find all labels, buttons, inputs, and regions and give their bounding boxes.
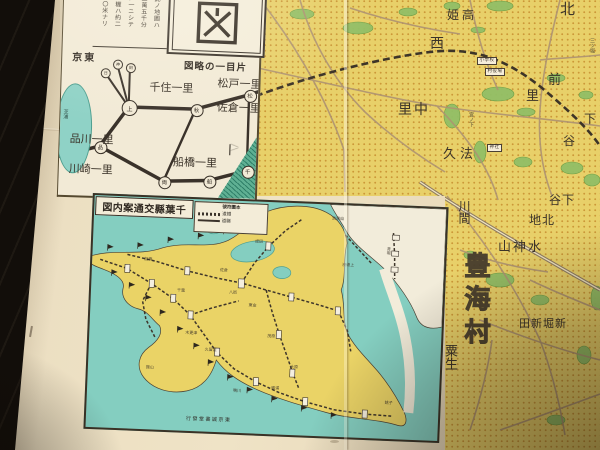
- shadow-bottom-right: [280, 210, 600, 450]
- inset-town: 東金: [248, 303, 256, 307]
- distance-note: 船橋一里: [173, 156, 217, 168]
- inset-town: 鴨川: [233, 389, 241, 393]
- label-takahime: 姫高: [447, 9, 477, 21]
- label-shimo: 下: [584, 113, 596, 125]
- inset-legend: 號符圖本 道鐵 道縣: [193, 201, 268, 235]
- label-ya: 谷: [563, 135, 575, 147]
- facility-box: 村役場: [485, 68, 505, 76]
- label-kita: 北: [560, 2, 575, 17]
- inset-town: 久留里: [205, 348, 217, 352]
- inset-town: 船橋: [144, 257, 152, 261]
- facility-box: 小學校: [477, 57, 497, 65]
- label-small: 宮ノ下: [468, 112, 473, 127]
- inset-town: 木更津: [185, 331, 197, 335]
- label-small: 三ツ堀: [589, 38, 594, 53]
- label-mae: 前: [548, 74, 561, 87]
- rail-label: 道鐵: [222, 211, 231, 217]
- label-shimoya: 谷下: [549, 194, 575, 206]
- photo-glare: [60, 0, 380, 130]
- inset-town: 勝浦: [271, 386, 279, 390]
- inset-town: 茂原: [267, 334, 275, 338]
- road-symbol: [198, 219, 220, 221]
- distance-note: 川崎一里: [69, 163, 113, 175]
- label-sato: 里: [526, 90, 539, 103]
- inset-title: 図内案通交縣葉千: [95, 196, 194, 219]
- inset-town: 成田: [255, 240, 263, 244]
- label-nishi: 西: [430, 37, 444, 51]
- label-nakazato: 里中: [398, 103, 430, 117]
- rail-symbol: [198, 212, 220, 216]
- label-hokyu: 久法: [443, 148, 477, 161]
- distance-note: 品川一里: [70, 133, 114, 145]
- facility-box: 神社: [487, 144, 502, 152]
- photo-of-vintage-map: 北姫高西里中前里下谷久法川間谷下地北山神水田新堀新粟生豊海村村役場小學校神社宮ノ…: [0, 0, 600, 450]
- inset-town: 館山: [146, 365, 154, 369]
- inset-town: 千葉: [177, 288, 185, 292]
- road-label: 道縣: [222, 218, 231, 224]
- shadow-bottom-left: [0, 330, 140, 450]
- inset-town: 佐倉: [220, 268, 228, 272]
- inset-town: 八街: [229, 290, 237, 294]
